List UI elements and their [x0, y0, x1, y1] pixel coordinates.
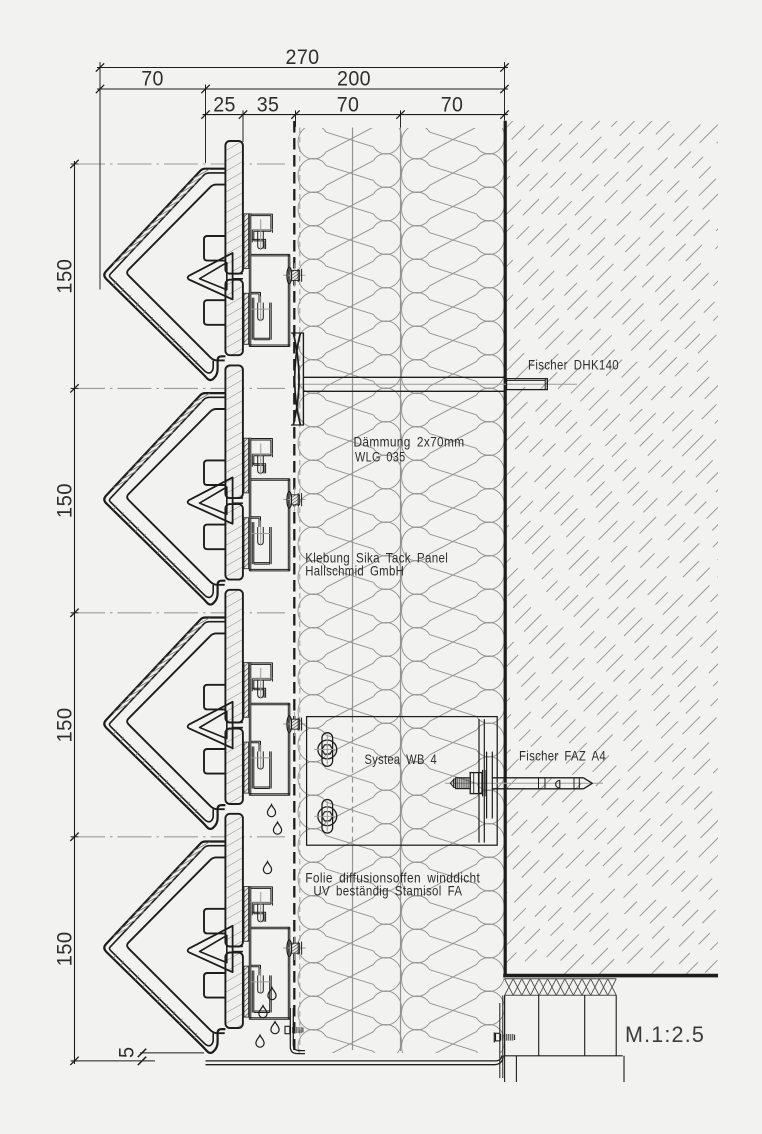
svg-text:Systea WB 4: Systea WB 4 — [365, 751, 438, 767]
svg-text:Fischer FAZ A4: Fischer FAZ A4 — [519, 748, 606, 764]
svg-text:UV beständig Stamisol FA: UV beständig Stamisol FA — [313, 882, 462, 898]
svg-text:M.1:2.5: M.1:2.5 — [625, 1022, 705, 1047]
svg-text:Fischer DHK140: Fischer DHK140 — [528, 357, 619, 373]
svg-text:150: 150 — [54, 931, 77, 966]
svg-text:70: 70 — [441, 93, 464, 116]
svg-text:70: 70 — [141, 68, 164, 91]
svg-text:WLG 035: WLG 035 — [355, 449, 406, 465]
svg-text:270: 270 — [286, 46, 320, 69]
svg-text:150: 150 — [54, 483, 77, 518]
svg-text:150: 150 — [54, 259, 77, 294]
svg-text:200: 200 — [337, 68, 371, 91]
svg-text:Hallschmid GmbH: Hallschmid GmbH — [305, 562, 404, 578]
svg-text:5: 5 — [116, 1047, 139, 1059]
svg-text:Dämmung 2x70mm: Dämmung 2x70mm — [354, 433, 465, 449]
svg-text:35: 35 — [257, 93, 280, 116]
svg-text:70: 70 — [337, 93, 360, 116]
svg-text:150: 150 — [54, 708, 77, 743]
svg-text:25: 25 — [213, 93, 236, 116]
